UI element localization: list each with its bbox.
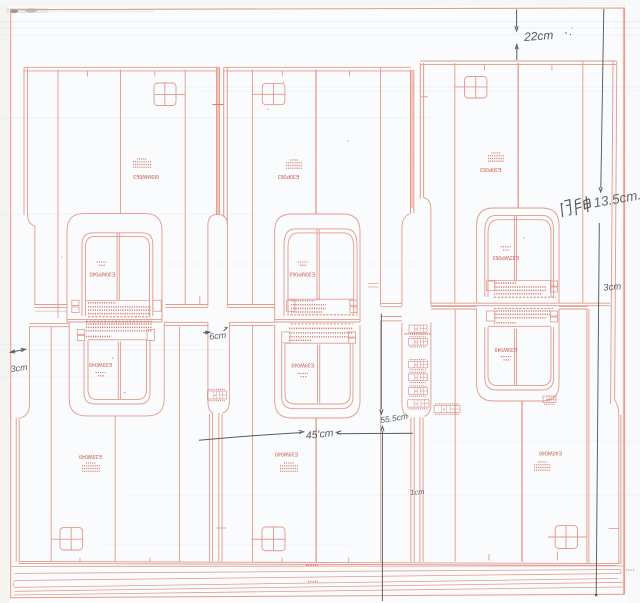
svg-text:E39W049: E39W049: [291, 362, 314, 368]
svg-text:E30P063: E30P063: [278, 173, 299, 179]
svg-text:E30MP040: E30MP040: [89, 270, 115, 276]
svg-text:E40W049: E40W049: [539, 449, 562, 455]
svg-text:E39W049: E39W049: [79, 453, 102, 459]
svg-text:E30P063: E30P063: [480, 166, 501, 172]
svg-text:E32WP063: E32WP063: [493, 254, 519, 260]
svg-text:3cm: 3cm: [603, 281, 622, 294]
svg-text:E39W049: E39W049: [494, 346, 517, 352]
svg-text:1cm: 1cm: [410, 487, 425, 497]
svg-text:E39W049: E39W049: [275, 450, 298, 456]
svg-text:E30MP063: E30MP063: [289, 270, 315, 276]
svg-text:6I0MW6E3: 6I0MW6E3: [133, 173, 159, 179]
svg-text:6cm: 6cm: [209, 330, 227, 342]
svg-text:22cm: 22cm: [523, 28, 554, 44]
svg-text:E39W049: E39W049: [89, 361, 112, 367]
